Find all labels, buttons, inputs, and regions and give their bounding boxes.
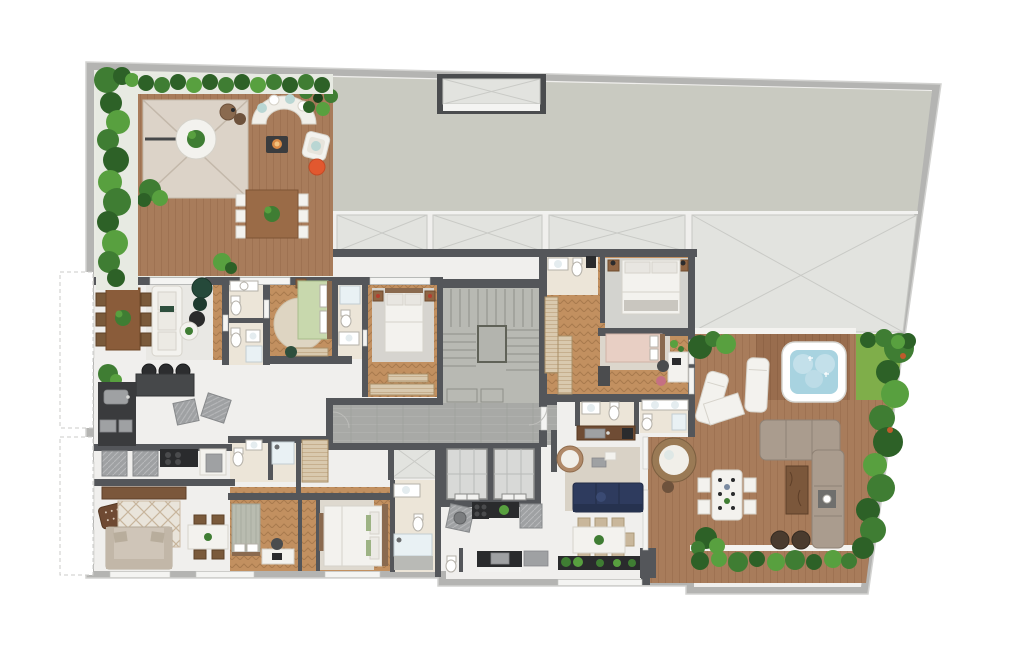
round-chair-icon (557, 446, 583, 472)
navy-sofa-icon (573, 483, 643, 512)
appliance-icon (173, 399, 199, 425)
pouf-icon (285, 346, 297, 358)
stool-icon (656, 376, 666, 386)
closet-icon (545, 297, 558, 373)
sun-lounger-icon (745, 357, 770, 412)
coffee-table-icon (180, 322, 198, 340)
desk-chair-icon (657, 360, 669, 372)
side-table-icon (662, 481, 674, 493)
floor-plan-svg (0, 0, 1024, 656)
cooktop-icon (472, 502, 489, 519)
fire-pit-icon (266, 136, 288, 153)
wardrobe-icon (370, 384, 434, 395)
dining-table-icon (96, 288, 151, 350)
desk-chair-icon (271, 538, 283, 550)
elevator-icon (494, 449, 534, 500)
wardrobe-icon (558, 336, 572, 394)
kitchen-counter-icon (98, 382, 136, 446)
pouf-icon (771, 531, 789, 549)
tv-console-icon (558, 556, 640, 570)
rustic-console-icon (786, 466, 808, 514)
roof-slab (333, 77, 932, 214)
sofa-icon (152, 286, 182, 356)
appliance-icon (524, 551, 548, 566)
pouf-icon (792, 531, 810, 549)
elevator-icon (447, 449, 487, 500)
dresser-icon (598, 366, 610, 386)
sofa-icon (106, 527, 172, 569)
terrace-dining-table-icon (236, 190, 308, 238)
pouf-icon (193, 297, 207, 311)
bench-icon (388, 374, 428, 382)
bedroom-c2 (319, 500, 388, 570)
washer-icon (446, 504, 474, 532)
closet-icon (302, 440, 328, 482)
kitchen-island-icon (136, 364, 194, 396)
orange-pouf-icon (309, 159, 325, 175)
kitchen-counter-icon (577, 426, 635, 440)
jacuzzi-icon (782, 342, 846, 402)
skylight (437, 74, 546, 114)
console-icon (102, 487, 186, 499)
corridor-floor (333, 403, 557, 445)
desk-icon (668, 352, 688, 382)
toilet-icon (446, 556, 456, 572)
appliance-icon (520, 504, 542, 528)
floor-plan-stage (0, 0, 1024, 656)
projection-outline (60, 272, 93, 575)
pouf-icon (192, 278, 212, 298)
bench-icon (319, 513, 324, 551)
